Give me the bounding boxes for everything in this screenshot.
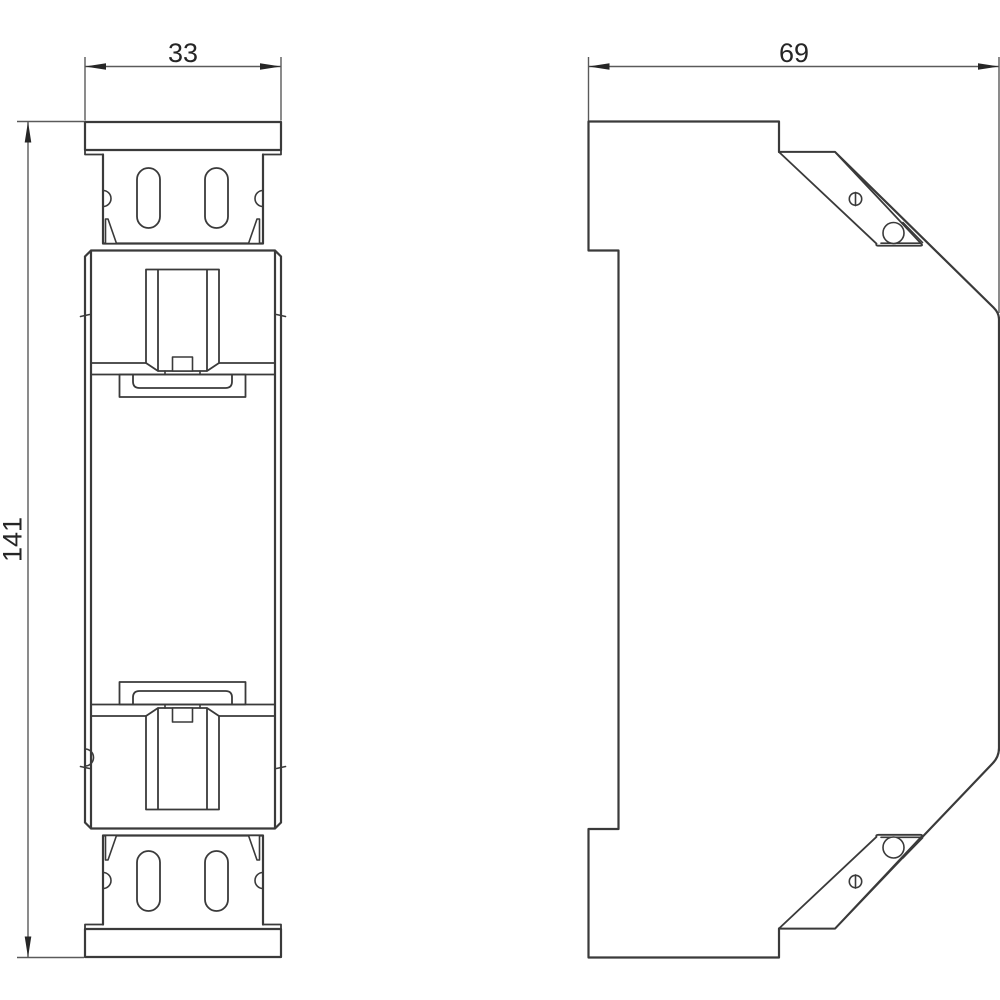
latch-tab-top-right: [249, 219, 260, 244]
dimension-front-height: 141: [0, 122, 84, 958]
front-bottom-terminal-block: [103, 836, 263, 925]
front-width-label: 33: [168, 38, 198, 68]
cable-hole-bottom: [883, 837, 904, 858]
front-height-label: 141: [0, 517, 28, 562]
latch-tab-bottom-left: [106, 836, 117, 861]
side-depth-arrow-right: [978, 63, 999, 70]
mounting-slot-top-right: [205, 168, 228, 228]
front-height-arrow-bottom: [25, 937, 32, 958]
label-window-top-inner: [133, 375, 232, 389]
terminal-wall-bumps: [103, 191, 263, 889]
front-width-arrow-left: [85, 63, 106, 70]
front-top-terminal-block: [103, 155, 263, 244]
label-window-bottom-inner: [133, 691, 232, 705]
carrier-grip-tab-bottom: [173, 708, 193, 722]
label-window-top: [120, 375, 246, 398]
fuse-carrier-top: [146, 270, 219, 372]
carrier-grip-tab-top: [173, 357, 193, 371]
technical-drawing-page: 33 141 69: [0, 0, 1000, 1000]
dimension-side-depth: 69: [589, 38, 1000, 313]
latch-tab-top-left: [106, 219, 117, 244]
mounting-slot-bottom-right: [205, 851, 228, 911]
cable-hole-top: [883, 223, 904, 244]
side-body-outline: [589, 122, 1000, 958]
front-view: [81, 122, 286, 957]
side-depth-dim-lines: [589, 57, 1000, 313]
technical-drawing-canvas: 33 141 69: [0, 0, 1000, 1000]
latch-tab-bottom-right: [249, 836, 260, 861]
side-depth-label: 69: [779, 38, 809, 68]
side-view: [589, 122, 1000, 958]
front-height-arrow-top: [25, 122, 32, 143]
front-bottom-cap: [85, 929, 281, 957]
front-width-arrow-right: [260, 63, 281, 70]
front-top-cap: [85, 122, 281, 150]
body-wall-notches: [81, 315, 286, 769]
side-depth-arrow-left: [589, 63, 610, 70]
fuse-carrier-bottom: [146, 708, 219, 810]
mounting-slot-bottom-left: [137, 851, 160, 911]
mounting-slot-top-left: [137, 168, 160, 228]
label-window-bottom: [120, 682, 246, 705]
dimension-front-width: 33: [85, 38, 281, 121]
front-body-outline: [85, 251, 281, 829]
